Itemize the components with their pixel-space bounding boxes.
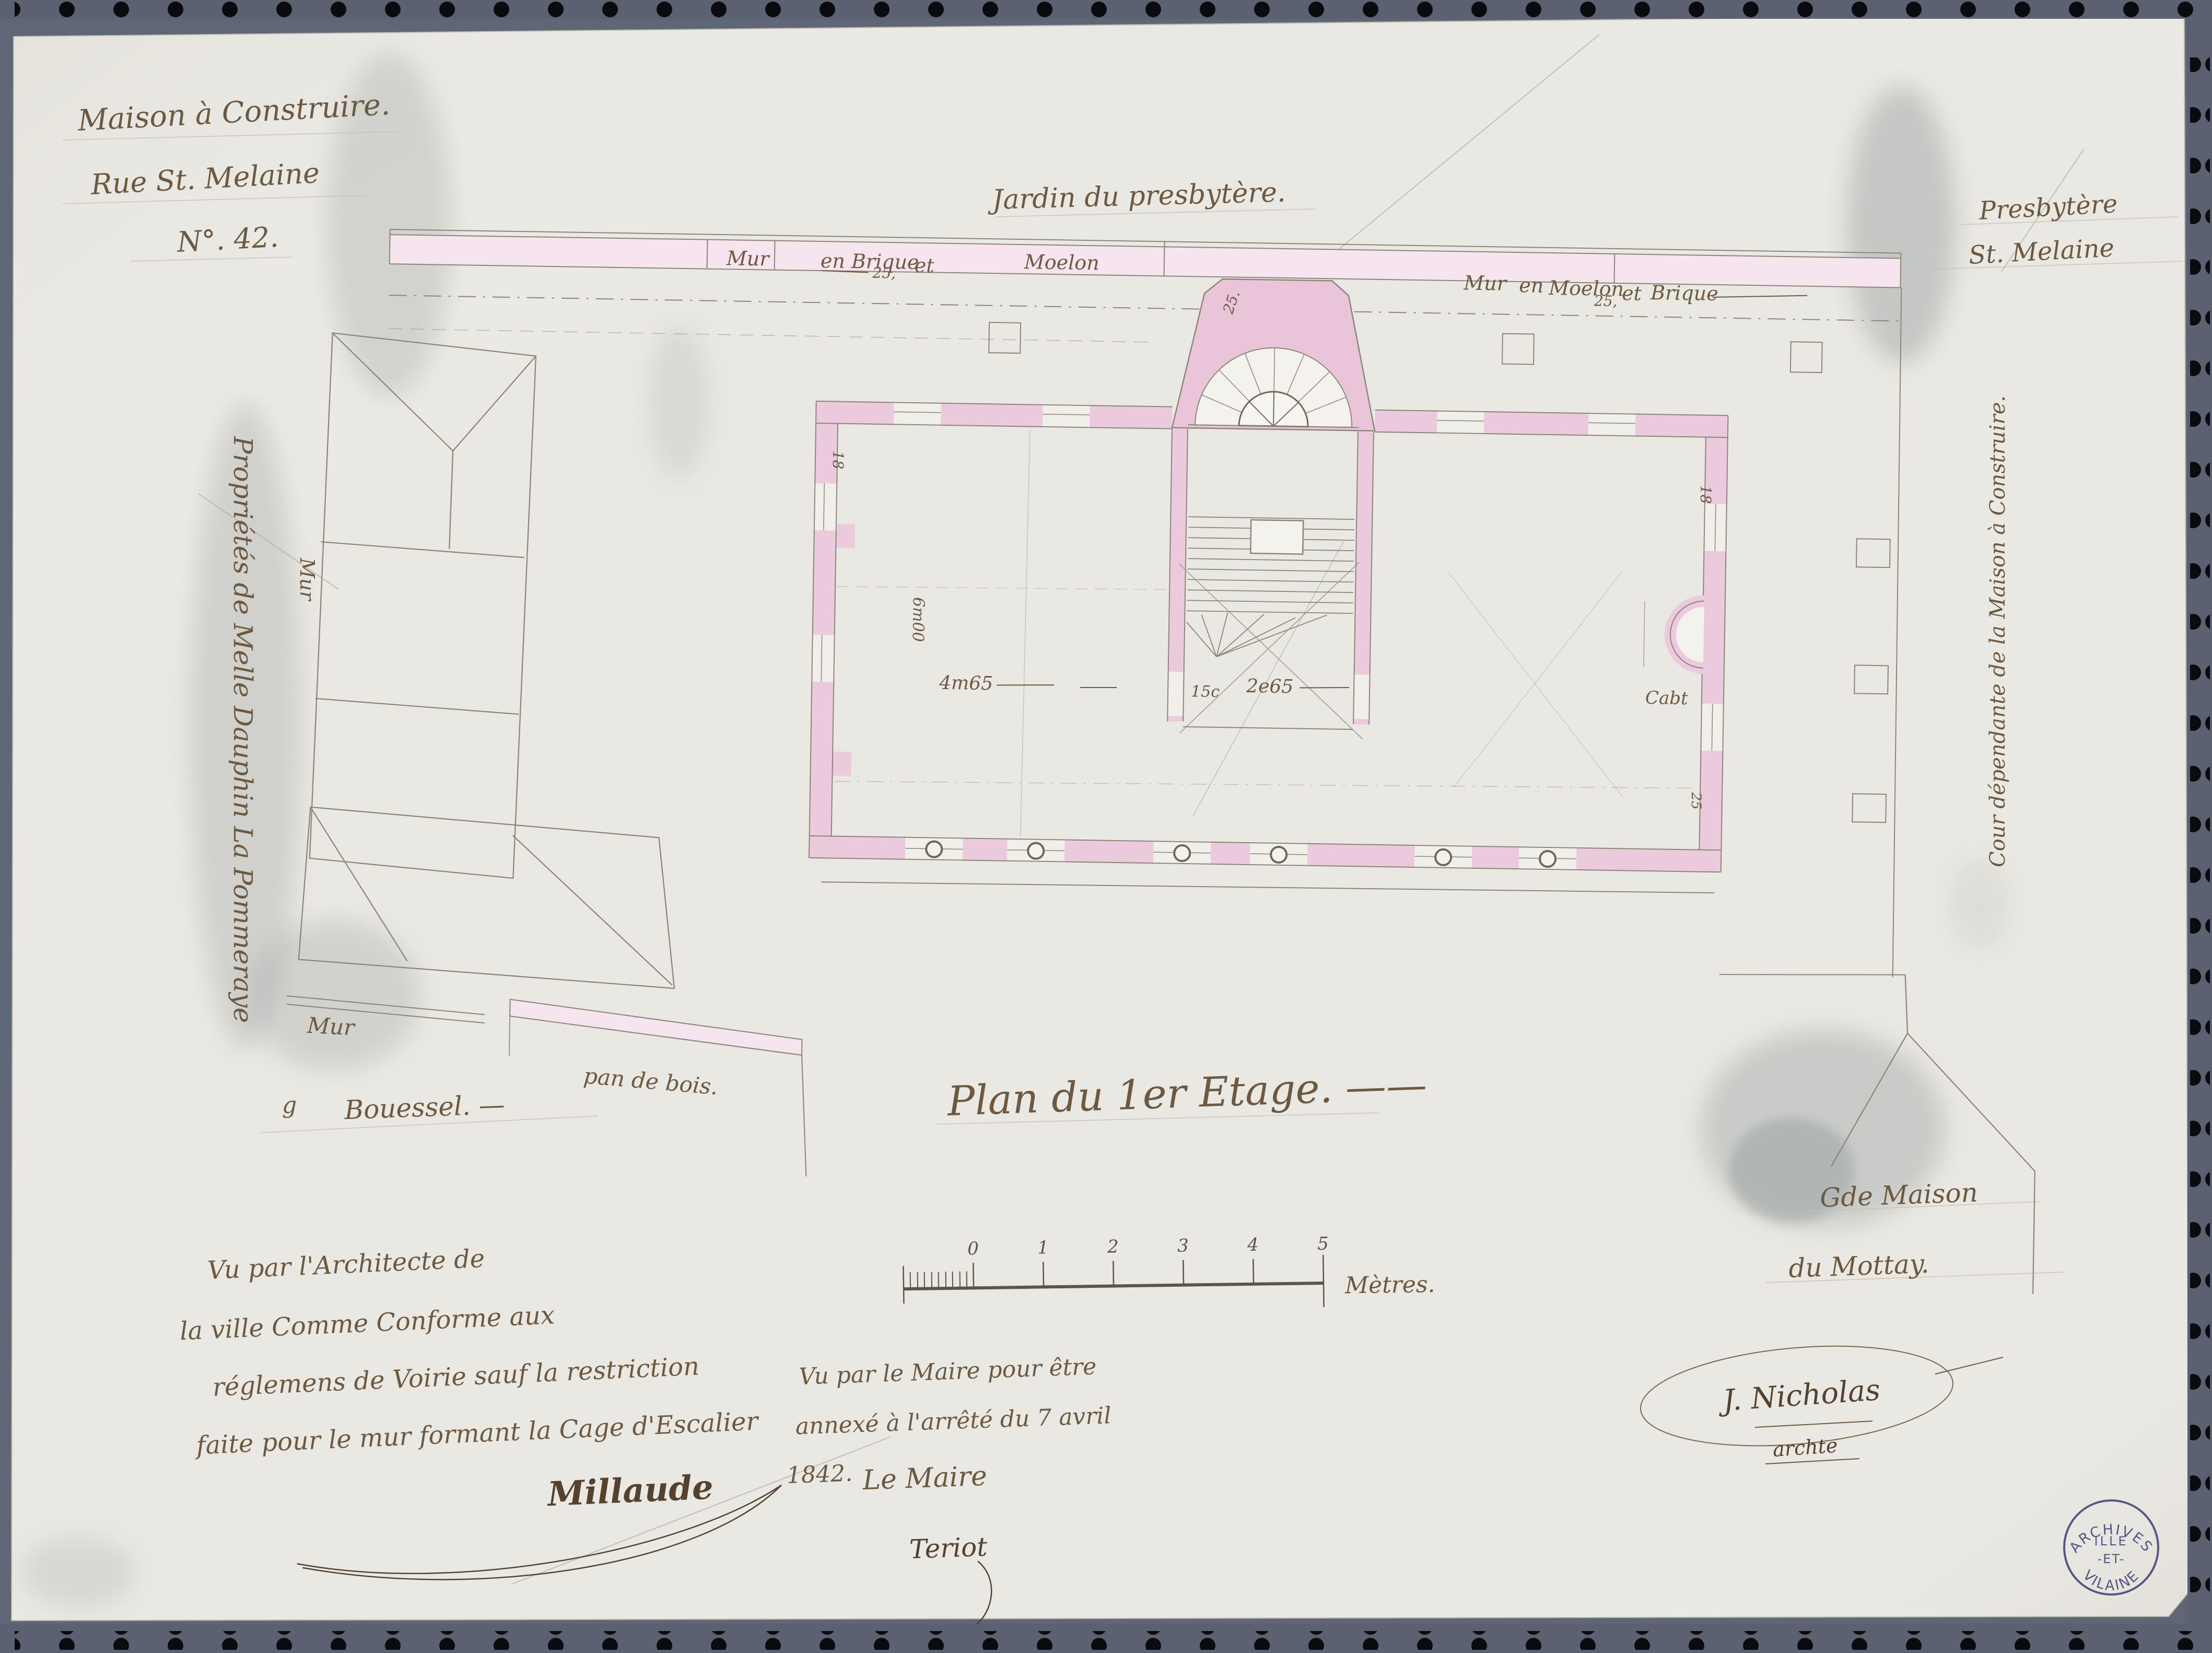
mayor-note-line4: Le Maire — [861, 1461, 987, 1496]
scale-tick-5: 5 — [1317, 1233, 1329, 1254]
scale-tick-4: 4 — [1247, 1235, 1259, 1255]
scale-tick-2: 2 — [1107, 1236, 1119, 1257]
architect-note-signature: Millaude — [546, 1468, 714, 1514]
owner-left-mark: g — [282, 1092, 297, 1119]
dim-25-right: 25 — [1688, 791, 1704, 810]
cab-label: Cabt — [1645, 688, 1689, 709]
scale-tick-1: 1 — [1037, 1237, 1049, 1258]
scale-tick-0: 0 — [967, 1238, 979, 1259]
stamp-line2: -ET- — [2098, 1552, 2125, 1566]
mur-label: Mur — [306, 1012, 356, 1041]
wall-right-w2: en — [1519, 274, 1544, 297]
court-label: Cour dépendante de la Maison à Construir… — [1986, 395, 2010, 867]
dim-18-left: 18 — [829, 450, 847, 469]
stamp-line1: ILLE — [2094, 1534, 2128, 1549]
dim-15c: 15c — [1191, 682, 1220, 701]
document-scan: Maison à Construire. Rue St. Melaine N°.… — [0, 0, 2212, 1653]
scale-unit-label: Mètres. — [1344, 1271, 1435, 1299]
wall-left-w4: et — [914, 254, 934, 277]
title-line3: N°. 42. — [175, 220, 279, 259]
wall-right-w1: Mur — [1463, 271, 1508, 295]
mur-vertical-label: Mur — [296, 557, 319, 602]
dim-18-right: 18 — [1697, 485, 1715, 504]
stair-tower — [1172, 278, 1377, 431]
dim-6m: 6m00 — [908, 597, 927, 642]
wall-right-w4: 25, — [1594, 292, 1618, 310]
wall-left-w1: Mur — [726, 247, 771, 270]
left-property-label: Propriétés de Melle Dauphin La Pommeraye — [228, 436, 258, 1023]
mayor-note-signature: Teriot — [909, 1532, 988, 1565]
wall-right-w5: et — [1622, 282, 1642, 305]
dim-4m65: 4m65 — [939, 672, 993, 695]
wall-left-w5: Moelon — [1024, 250, 1099, 274]
neighbor-line1: Gde Maison — [1819, 1177, 1978, 1213]
scale-tick-3: 3 — [1177, 1236, 1189, 1256]
wall-left-w3: 25, — [872, 264, 896, 282]
architect-signature-title: archte — [1772, 1434, 1839, 1461]
wall-left-w2: en Brique — [821, 249, 919, 274]
wall-right-w6: Brique — [1650, 281, 1718, 305]
neighbor-line2: du Mottay. — [1788, 1249, 1929, 1284]
mayor-note-line3: 1842. — [786, 1460, 853, 1489]
owner-left-label: Bouessel. — — [343, 1089, 505, 1125]
dim-2e65: 2e65 — [1246, 676, 1294, 697]
